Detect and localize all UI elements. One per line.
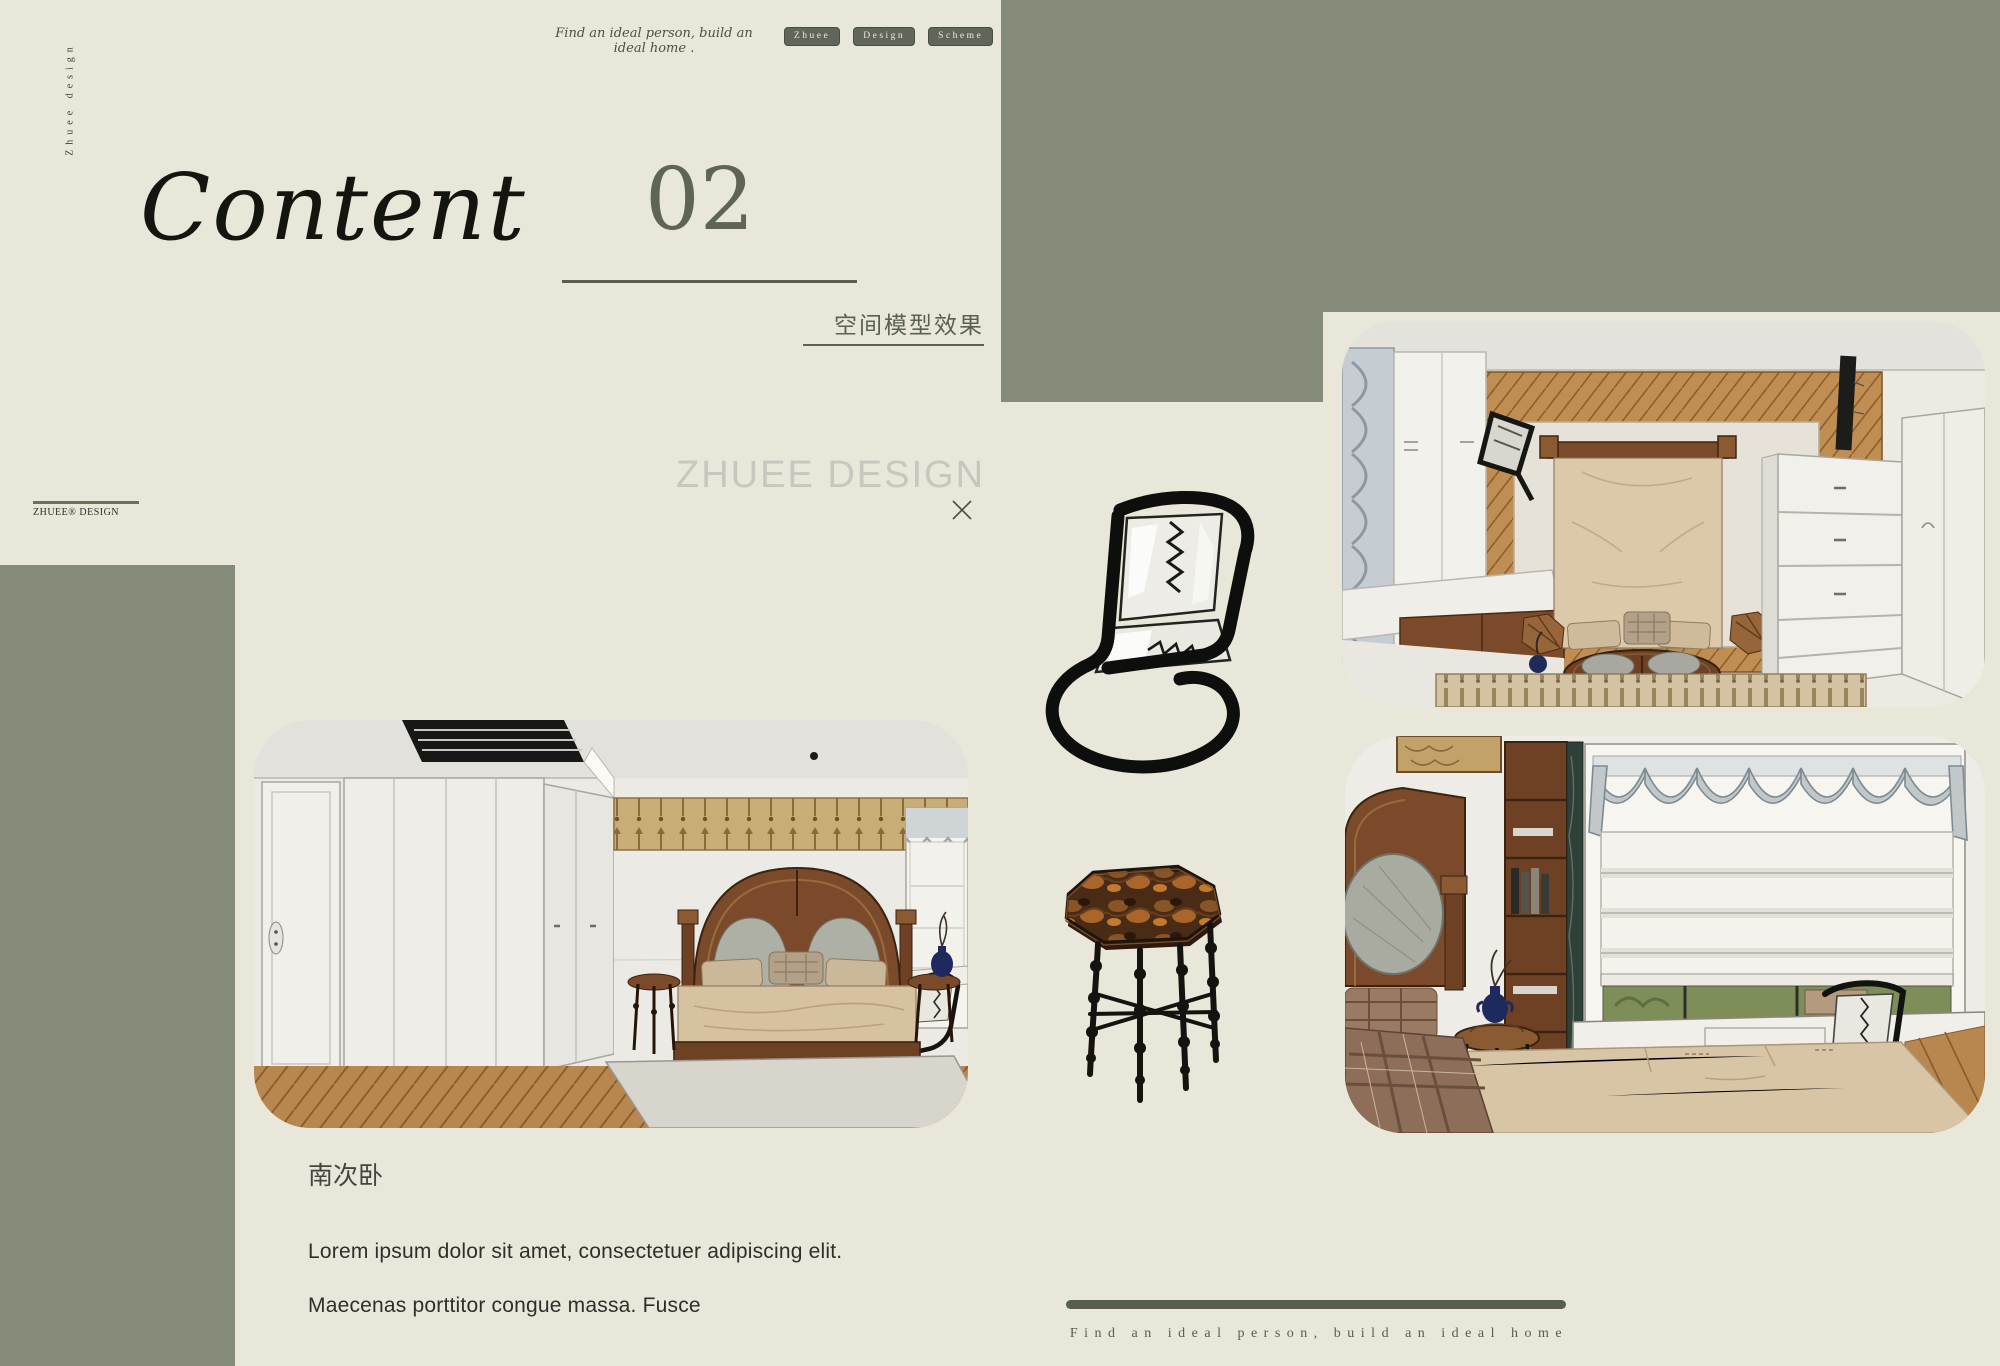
header-nav: Zhuee Design Scheme — [784, 27, 993, 46]
render-south-bedroom — [254, 720, 968, 1128]
header-tagline: Find an ideal person, build an ideal hom… — [544, 26, 764, 56]
section-caption: 空间模型效果 — [760, 306, 984, 340]
section-heading: 南次卧 — [308, 1156, 383, 1192]
logo-text: ZHUEE® DESIGN — [33, 507, 119, 518]
section-paragraph-line-1: Lorem ipsum dolor sit amet, consectetuer… — [308, 1240, 842, 1264]
section-number: 02 — [645, 150, 754, 250]
nav-button-scheme[interactable]: Scheme — [928, 27, 993, 46]
logo-rule — [33, 501, 139, 504]
green-block-bottom-left — [0, 565, 235, 1366]
watermark-text: ZHUEE DESIGN — [676, 454, 985, 497]
close-icon[interactable] — [950, 498, 974, 522]
page-title: Content — [140, 154, 527, 261]
section-number-rule — [562, 280, 857, 283]
nav-button-zhuee[interactable]: Zhuee — [784, 27, 840, 46]
vertical-brand-text: Zhuee design — [65, 42, 76, 156]
footer-tagline: Find an ideal person, build an ideal hom… — [1066, 1326, 1572, 1342]
slide-canvas: Zhuee design Find an ideal person, build… — [0, 0, 2000, 1366]
green-block-top — [1001, 0, 2000, 312]
render-window-desk — [1345, 736, 1985, 1133]
nav-button-design[interactable]: Design — [853, 27, 915, 46]
green-block-top-step — [1001, 312, 1323, 402]
footer-divider-bar — [1066, 1300, 1566, 1309]
section-paragraph-line-2: Maecenas porttitor congue massa. Fusce — [308, 1294, 701, 1318]
section-caption-rule — [803, 344, 984, 346]
side-table-illustration — [1060, 862, 1236, 1110]
chair-illustration — [1032, 488, 1278, 794]
render-bedroom-overview — [1342, 322, 1985, 707]
